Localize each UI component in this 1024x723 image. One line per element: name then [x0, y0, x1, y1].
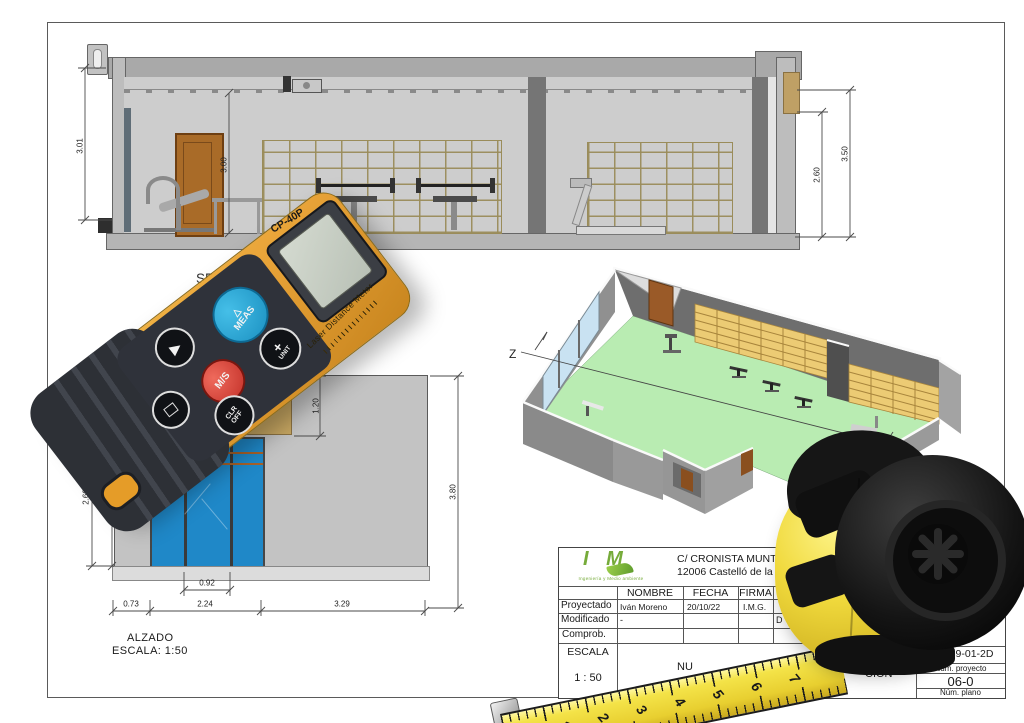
iso-cabinet [827, 340, 849, 402]
tape-measure-body [760, 430, 1010, 680]
company-logo: I M Ingeniería y Medio ambiente [565, 548, 657, 584]
middle-wall-column [528, 77, 546, 233]
projector-bracket [283, 76, 291, 92]
tape-number: 4 [671, 694, 688, 710]
iso-marker-start: Z [509, 347, 516, 361]
dim-elev-bottom-right: 3.29 [334, 600, 350, 609]
plano-title-fragment: NU [677, 661, 693, 673]
barbell-plate [416, 178, 421, 193]
barbell-bar [418, 184, 494, 187]
gear-hub-icon [906, 522, 970, 586]
desk-leg [257, 202, 260, 234]
barbell-bar [318, 184, 394, 187]
row-modificado-label: Modificado [561, 614, 609, 625]
col-header-nombre: NOMBRE [617, 587, 683, 599]
laser-button-icon: ▶ [167, 339, 183, 355]
left-pilaster [124, 108, 131, 232]
wall-rack-grid-right [587, 142, 733, 234]
bike-handlebar [146, 176, 180, 204]
dim-elev-bottom-center: 2.24 [197, 600, 213, 609]
dim-elev-door-leaf: 0.92 [199, 579, 215, 588]
elevation-title: ALZADO [127, 632, 173, 644]
wall-unit-detail [93, 49, 102, 69]
col-header-fecha: FECHA [683, 587, 738, 599]
projector [292, 79, 322, 93]
escala-label: ESCALA [559, 646, 617, 658]
desk-top [212, 198, 262, 202]
right-wall-column [752, 77, 768, 233]
sidewalk-strip [112, 566, 430, 581]
desk-leg [214, 202, 217, 234]
barbell-plate [490, 178, 495, 193]
floor-equipment [98, 218, 112, 233]
door-panel-line [183, 142, 212, 224]
dim-section-right-inner: 2.60 [813, 167, 822, 183]
row-proyectado-nombre: Iván Moreno [620, 602, 667, 612]
door-swing-mark [201, 498, 227, 529]
num-plano-label: Núm. plano [916, 688, 1005, 697]
dim-section-left-inner: 3.00 [220, 157, 229, 173]
dim-elev-bottom-left: 0.73 [123, 600, 139, 609]
row-modificado-nombre: - [620, 615, 623, 625]
wall-cavity [768, 77, 776, 233]
iso-door [649, 280, 673, 326]
bike-seatpost [176, 204, 181, 230]
elevation-scale: ESCALA: 1:50 [112, 645, 188, 657]
mode-button-icon [163, 402, 179, 417]
logo-subtext: Ingeniería y Medio ambiente [565, 576, 657, 581]
dim-section-right-outer: 3.50 [841, 146, 850, 162]
dim-section-left-outer: 3.01 [76, 138, 85, 154]
dim-elev-total-height: 3.80 [449, 484, 458, 500]
ms-label: M/S [214, 371, 233, 391]
projector-lens [303, 82, 310, 89]
tape-number: 2 [595, 709, 612, 723]
tape-number: 6 [748, 678, 765, 694]
barbell-plate [390, 178, 395, 193]
row-comprob-label: Comprob. [562, 629, 606, 640]
ceiling-line [124, 89, 752, 93]
wall-mounted-unit [87, 44, 108, 75]
dim-elev-sign: 1.20 [312, 398, 321, 414]
treadmill-deck [576, 226, 666, 235]
bench-leg [451, 202, 457, 230]
roof-slab [108, 57, 765, 79]
plan-sheet: LL ALZADO ESCALA: 1:50 [0, 0, 1024, 723]
tape-number: 3 [633, 702, 650, 718]
row-proyectado-fecha: 20/10/22 [687, 602, 720, 612]
tape-number: 5 [710, 686, 727, 702]
row-proyectado-label: Proyectado [561, 600, 612, 611]
exterior-sign-panel [783, 72, 800, 114]
escala-value: 1 : 50 [559, 672, 617, 684]
barbell-plate [316, 178, 321, 193]
